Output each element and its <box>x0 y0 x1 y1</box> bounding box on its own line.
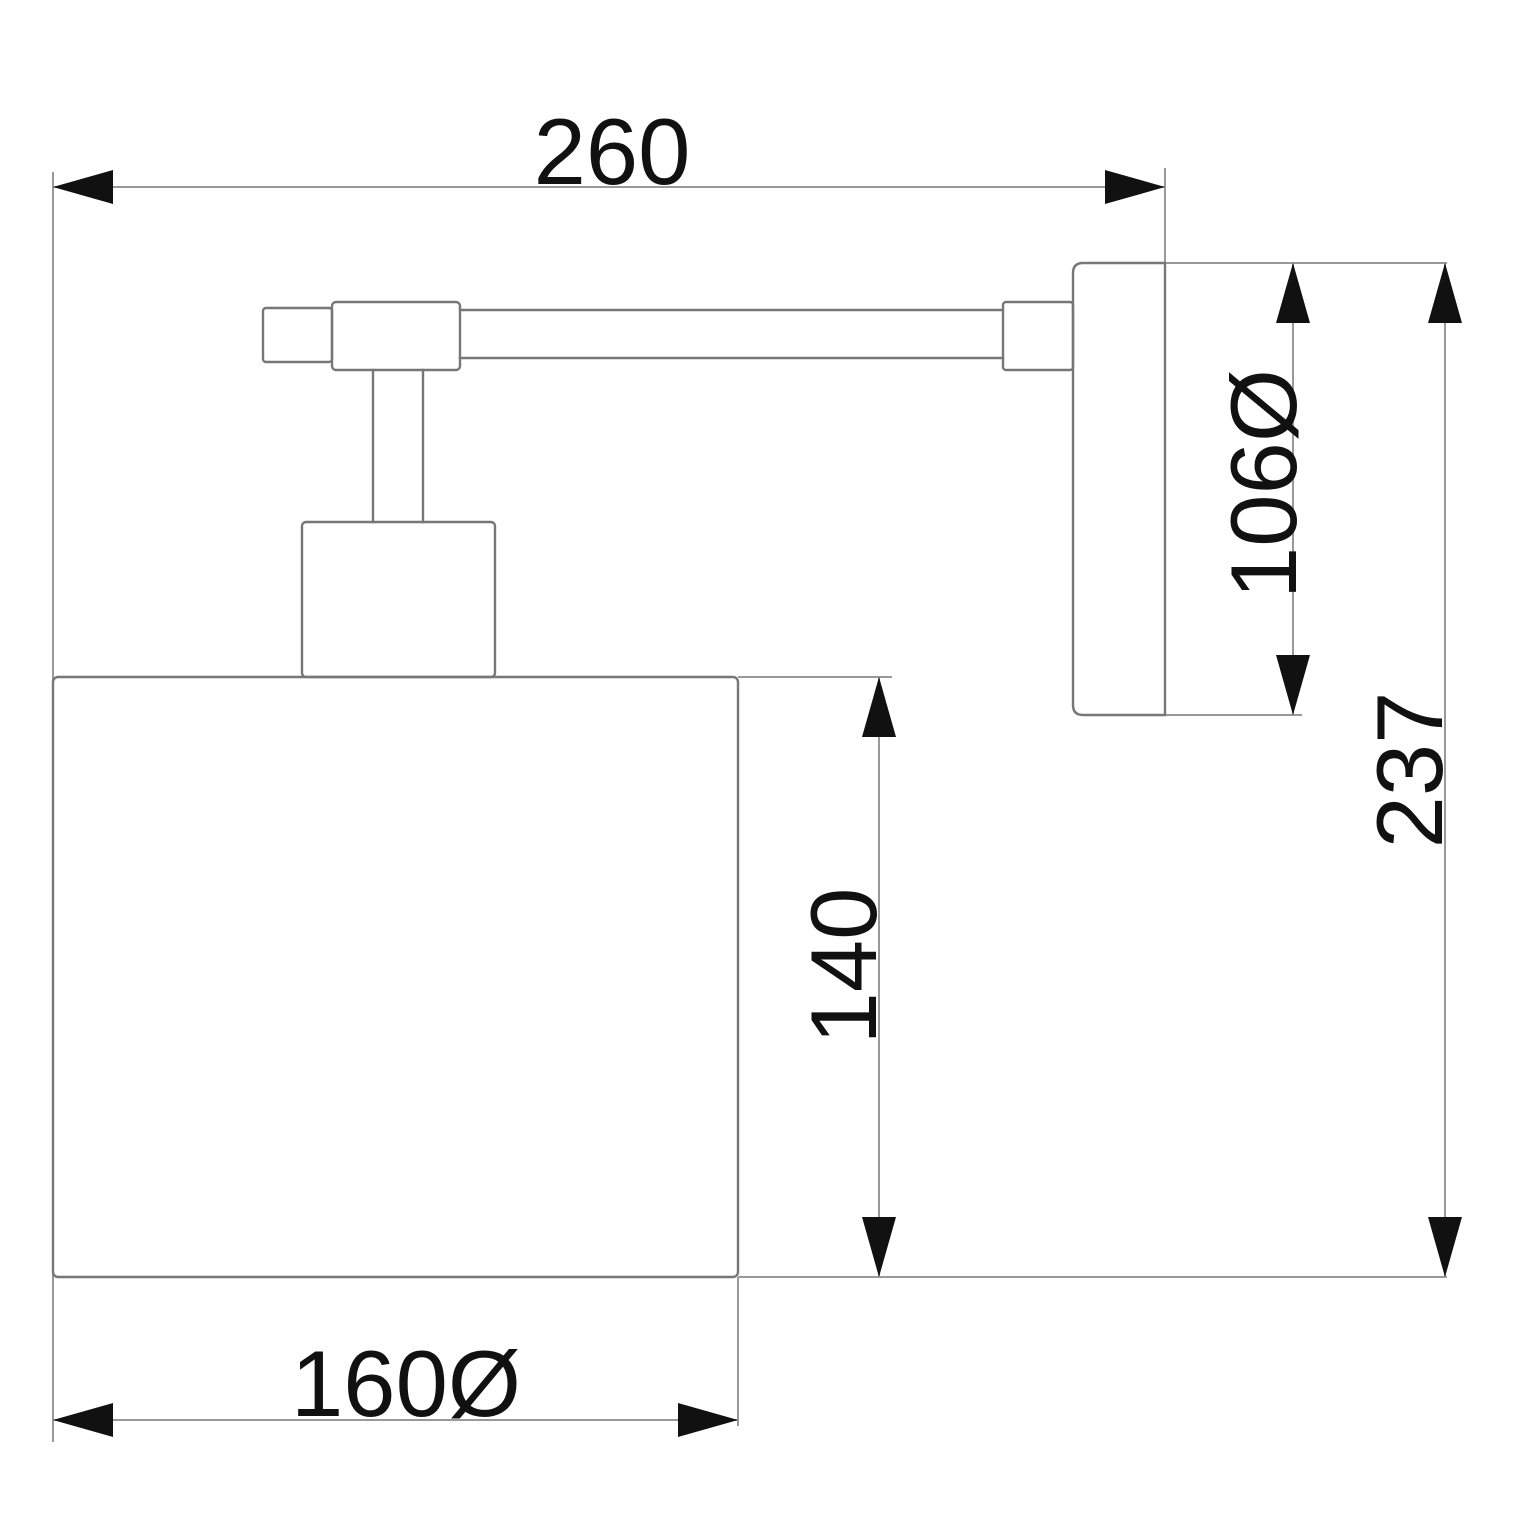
arrowhead-overall-width-right-icon <box>1105 170 1165 204</box>
arrowhead-backplate-bottom-icon <box>1276 655 1310 715</box>
arrowhead-shade-diameter-right-icon <box>678 1403 738 1437</box>
arrowhead-overall-height-bottom-icon <box>1428 1217 1462 1277</box>
drawing-canvas: 260 106Ø 237 140 160Ø <box>0 0 1540 1540</box>
arrowhead-shade-height-bottom-icon <box>862 1217 896 1277</box>
wall-plate-outline <box>1073 263 1165 715</box>
label-overall-width: 260 <box>534 99 691 204</box>
arrowhead-overall-width-left-icon <box>53 170 113 204</box>
lamp-holder-outline <box>302 522 495 677</box>
arrowhead-overall-height-top-icon <box>1428 263 1462 323</box>
label-backplate-diameter: 106Ø <box>1211 369 1316 599</box>
label-shade-diameter: 160Ø <box>291 1331 521 1436</box>
arm-joint-outline <box>332 302 460 370</box>
label-overall-height: 237 <box>1357 692 1462 849</box>
label-shade-height: 140 <box>791 888 896 1045</box>
arrowhead-shade-diameter-left-icon <box>53 1403 113 1437</box>
arrowhead-shade-height-top-icon <box>862 677 896 737</box>
shade-outline <box>53 677 738 1277</box>
arm-collar-outline <box>1003 302 1073 370</box>
arrowhead-backplate-top-icon <box>1276 263 1310 323</box>
lamp-outline <box>53 263 1165 1277</box>
arm-end-cap-outline <box>263 308 332 362</box>
dimension-drawing: 260 106Ø 237 140 160Ø <box>0 0 1540 1540</box>
